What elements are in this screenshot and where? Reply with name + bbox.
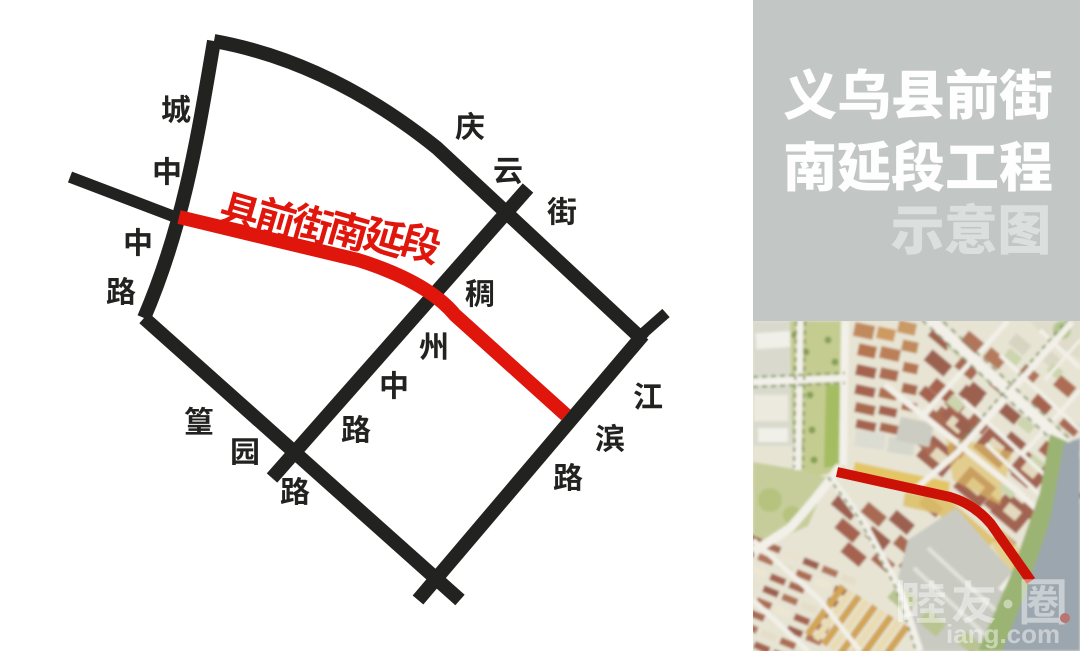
svg-text:iang.com: iang.com [946,619,1060,649]
